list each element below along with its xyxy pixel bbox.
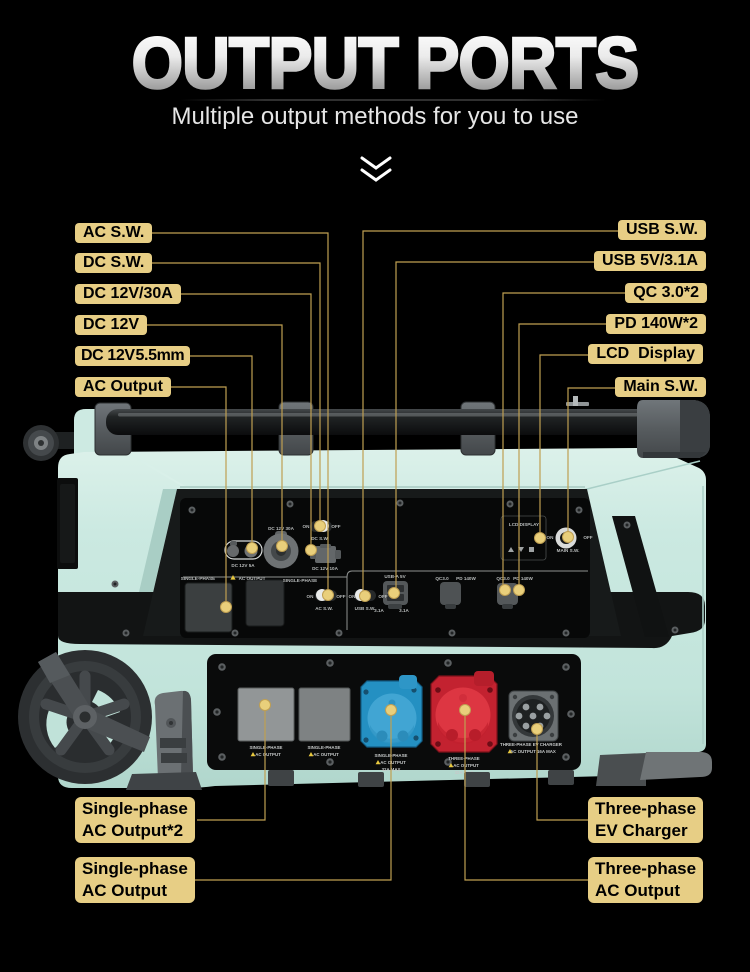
svg-text:THREE-PHASE: THREE-PHASE: [448, 756, 480, 761]
svg-text:DC S.W.: DC S.W.: [311, 536, 329, 541]
svg-text:OFF: OFF: [336, 594, 345, 599]
svg-text:SINGLE-PHASE: SINGLE-PHASE: [308, 745, 341, 750]
svg-text:QC3.0: QC3.0: [435, 576, 449, 581]
svg-text:AC OUTPUT: AC OUTPUT: [255, 752, 281, 757]
svg-text:DC 12V 5A: DC 12V 5A: [231, 563, 255, 568]
svg-text:OFF: OFF: [331, 524, 340, 529]
svg-text:ON: ON: [303, 524, 311, 529]
svg-text:AC OUTPUT: AC OUTPUT: [453, 763, 479, 768]
svg-text:AC OUTPUT: AC OUTPUT: [380, 760, 406, 765]
svg-text:ON: ON: [307, 594, 315, 599]
svg-text:AC OUTPUT 16A MAX: AC OUTPUT 16A MAX: [510, 749, 556, 754]
svg-text:SINGLE-PHASE: SINGLE-PHASE: [181, 576, 215, 581]
svg-text:THREE-PHASE EV CHARGER: THREE-PHASE EV CHARGER: [500, 742, 563, 747]
svg-text:MAIN S.W.: MAIN S.W.: [557, 548, 580, 553]
svg-text:ON: ON: [349, 594, 357, 599]
svg-text:DC 12V 10A: DC 12V 10A: [312, 566, 338, 571]
svg-text:USB S.W.: USB S.W.: [355, 606, 376, 611]
svg-text:SINGLE-PHASE: SINGLE-PHASE: [283, 578, 317, 583]
svg-text:ON: ON: [547, 535, 555, 540]
svg-text:LCD DISPLAY: LCD DISPLAY: [509, 522, 539, 527]
svg-text:OFF: OFF: [378, 594, 387, 599]
svg-text:DC 12V 30A: DC 12V 30A: [268, 526, 294, 531]
svg-text:SINGLE-PHASE: SINGLE-PHASE: [250, 745, 283, 750]
svg-text:AC OUTPUT: AC OUTPUT: [313, 752, 339, 757]
svg-text:PD 140W: PD 140W: [513, 576, 533, 581]
svg-text:PD 140W: PD 140W: [456, 576, 476, 581]
svg-text:OFF: OFF: [583, 535, 592, 540]
svg-text:3.1A: 3.1A: [374, 608, 384, 613]
svg-text:AC S.W.: AC S.W.: [315, 606, 333, 611]
svg-text:AC OUTPUT: AC OUTPUT: [239, 576, 266, 581]
svg-text:3.1A: 3.1A: [399, 608, 409, 613]
